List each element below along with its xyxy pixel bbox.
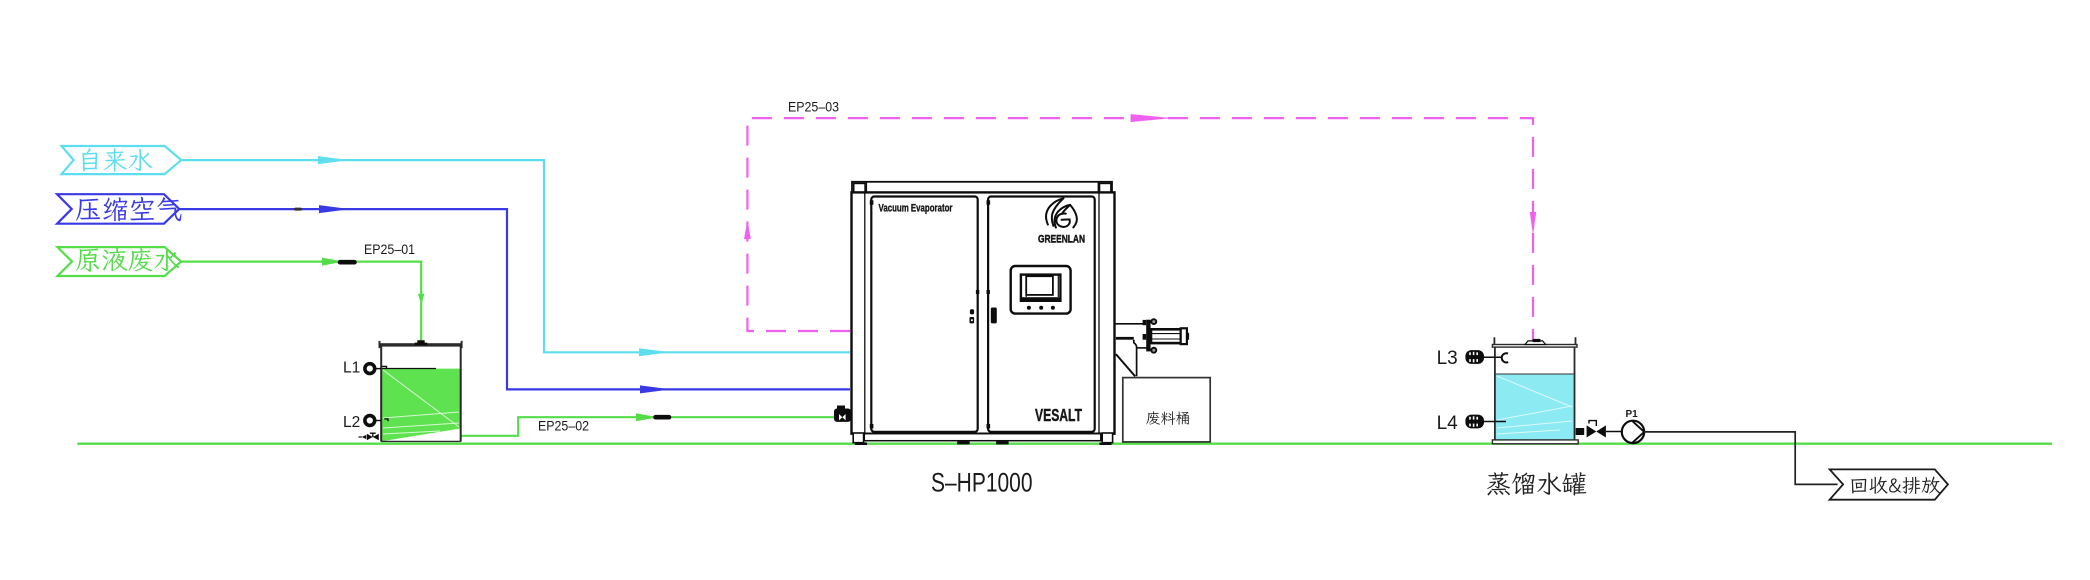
svg-text:P1: P1 [1626, 409, 1639, 420]
svg-text:L1: L1 [343, 359, 360, 376]
svg-text:GREENLAN: GREENLAN [1038, 234, 1085, 246]
svg-text:L3: L3 [1437, 348, 1458, 369]
svg-text:L2: L2 [343, 414, 360, 431]
svg-text:L4: L4 [1437, 413, 1459, 434]
svg-text:EP25–02: EP25–02 [538, 418, 589, 434]
svg-text:EP25–03: EP25–03 [788, 98, 839, 114]
svg-text:S–HP1000: S–HP1000 [931, 467, 1033, 497]
svg-text:EP25–01: EP25–01 [364, 241, 415, 257]
svg-text:Vacuum Evaporator: Vacuum Evaporator [879, 203, 954, 215]
svg-text:VESALT: VESALT [1035, 405, 1082, 425]
